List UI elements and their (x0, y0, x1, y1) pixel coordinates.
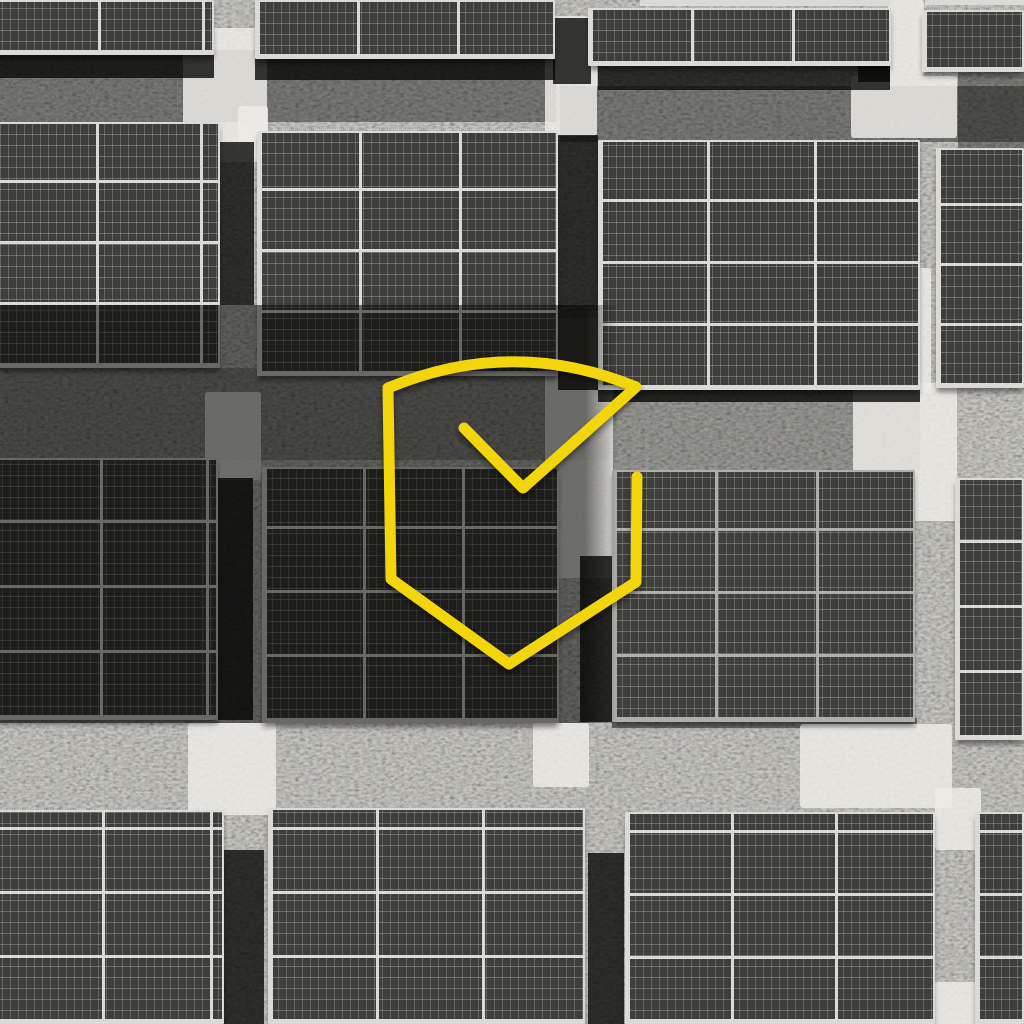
shield-check-outline (388, 362, 637, 664)
solar-farm-aerial-photo (0, 0, 1024, 1024)
shield-check-icon (0, 0, 1024, 1024)
